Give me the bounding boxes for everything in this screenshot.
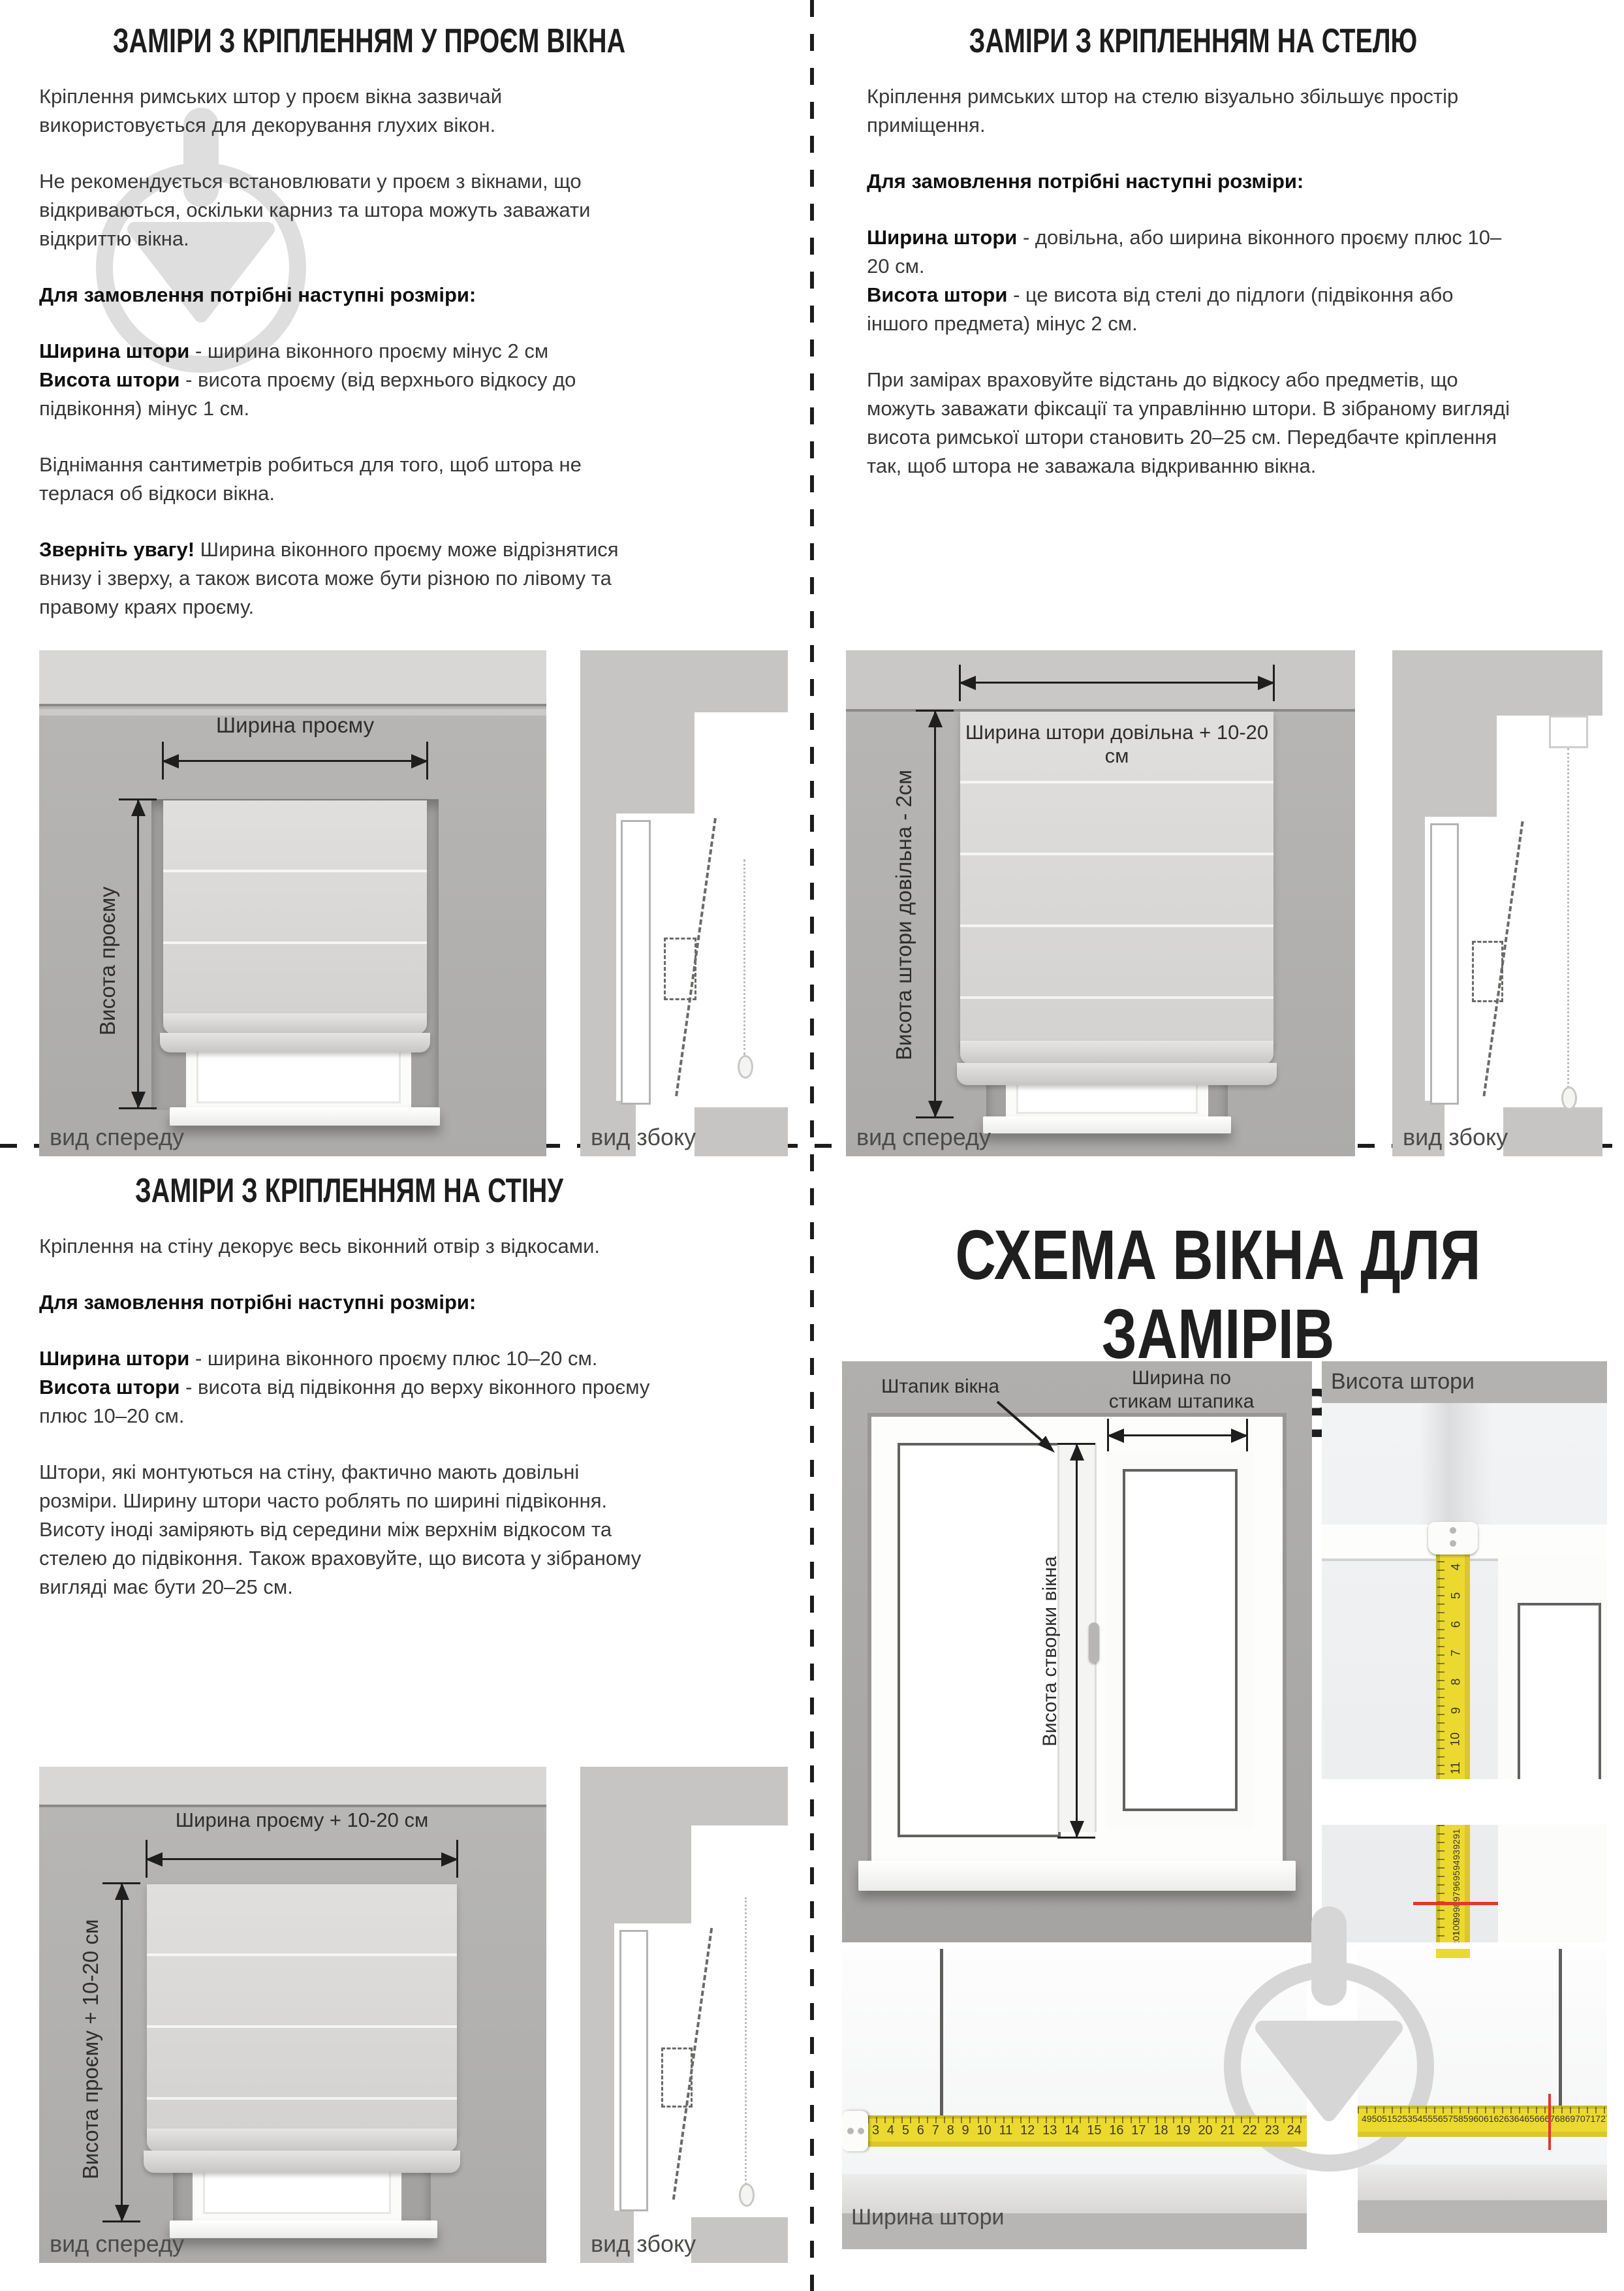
- page-canvas: { "opening": { "title": "ЗАМІРИ З КРІПЛЕ…: [0, 0, 1624, 2291]
- tape-number: 52: [1392, 2113, 1403, 2124]
- tape-number: 95: [1451, 1871, 1461, 1881]
- tape-number: 7: [1449, 1650, 1463, 1657]
- size-definitions: Ширина штори - довільна, або ширина віко…: [867, 223, 1520, 338]
- bead-width-arrow: [1108, 1434, 1247, 1436]
- dimension-tick: [102, 2220, 140, 2222]
- tape-number: 54: [1413, 2113, 1423, 2124]
- ceiling: [39, 1767, 546, 1805]
- wall-block: [1392, 650, 1497, 817]
- attention-note: Зверніть увагу! Ширина віконного проєму …: [39, 535, 653, 622]
- ceiling: [846, 650, 1355, 709]
- tape-number: 96: [1451, 1881, 1461, 1891]
- height-dimension-label: Висота штори довільна - 2см: [892, 770, 916, 1060]
- wall-block: [1503, 1107, 1602, 1156]
- side-view-caption: вид збоку: [591, 2230, 696, 2258]
- tape-number: 15: [1087, 2123, 1101, 2138]
- window-profile: [621, 820, 651, 1105]
- tape-number: 18: [1153, 2123, 1168, 2138]
- tape-number: 63: [1504, 2113, 1514, 2124]
- opening-front-view: Ширина проєму Висота проєму вид спереду: [39, 650, 546, 1156]
- photo-cut-gap: [1322, 1779, 1607, 1825]
- dimension-tick: [959, 665, 961, 701]
- tape-number: 6: [1449, 1621, 1463, 1628]
- wall-block: [580, 1767, 691, 1923]
- term: Ширина штори: [867, 226, 1017, 249]
- measuring-tape-vertical-upper: 34567891011: [1436, 1527, 1470, 1779]
- section-ceiling-mount: ЗАМІРИ З КРІПЛЕННЯМ НА СТЕЛЮ Кріплення р…: [812, 0, 1624, 646]
- dimension-tick: [1107, 1419, 1109, 1451]
- tape-number: 5: [1449, 1592, 1463, 1600]
- order-heading: Для замовлення потрібні наступні розміри…: [867, 167, 1520, 196]
- title-line: СХЕМА ВІКНА ДЛЯ ЗАМІРІВ: [893, 1216, 1542, 1374]
- wall-side-view: вид збоку: [580, 1767, 788, 2263]
- front-view-caption: вид спереду: [856, 1124, 991, 1151]
- ceiling-side-view: вид збоку: [1392, 650, 1602, 1156]
- dimension-tick: [119, 1107, 157, 1109]
- ceiling: [39, 650, 546, 704]
- height-arrow: [137, 800, 139, 1107]
- tape-number: 92: [1451, 1839, 1461, 1850]
- shade-fold: [160, 1033, 430, 1052]
- wall-block: [691, 2217, 788, 2263]
- window-sill: [170, 2220, 437, 2238]
- term: Висота штори: [39, 368, 180, 391]
- dimension-tick: [1057, 1837, 1095, 1839]
- window-sill: [170, 1107, 440, 1126]
- front-view-caption: вид спереду: [50, 2230, 184, 2258]
- paragraph: Кріплення римських штор у проєм вікна за…: [39, 82, 653, 140]
- tape-number: 57: [1443, 2113, 1454, 2124]
- dimension-tick: [146, 1840, 148, 1878]
- tape-number: 53: [1402, 2113, 1413, 2124]
- section-opening-mount: ЗАМІРИ З КРІПЛЕННЯМ У ПРОЄМ ВІКНА Кріпле…: [0, 0, 812, 646]
- curtain-width-label: Ширина штори: [851, 2205, 1004, 2230]
- sash-window-diagram: Штапик вікна Ширина по стикам штапика Ви…: [842, 1361, 1312, 1942]
- tape-number: 7: [932, 2123, 939, 2138]
- size-definitions: Ширина штори - ширина віконного проєму м…: [39, 337, 653, 423]
- dimension-tick: [456, 1840, 458, 1878]
- width-dimension-label: Ширина проєму: [163, 713, 427, 738]
- tape-number: 55: [1422, 2113, 1433, 2124]
- hook-hole: [1450, 1540, 1456, 1547]
- bracket-dashed: [664, 938, 696, 1000]
- curtain-height-photo: Висота штори 34567891011 919293949596979…: [1322, 1361, 1607, 1942]
- bead-width-label: Ширина по стикам штапика: [1100, 1367, 1263, 1414]
- shade-roller: [1549, 716, 1588, 748]
- paragraph: Кріплення на стіну декорує весь віконний…: [39, 1232, 659, 1261]
- window-profile: [1430, 823, 1459, 1105]
- sash-height-arrow: [1076, 1445, 1078, 1837]
- width-definition: Ширина штори - ширина віконного проєму п…: [39, 1344, 659, 1373]
- tape-number: 12: [1020, 2123, 1035, 2138]
- tape-number: 21: [1220, 2123, 1234, 2138]
- tape-number: 11: [1449, 1762, 1463, 1775]
- hook-hole: [847, 2128, 854, 2134]
- tape-number: 13: [1042, 2123, 1057, 2138]
- section-title: ЗАМІРИ З КРІПЛЕННЯМ НА СТЕЛЮ: [945, 22, 1441, 60]
- wall-block: [580, 1923, 614, 2211]
- tape-number: 61: [1484, 2113, 1494, 2124]
- tape-number: 70: [1575, 2113, 1585, 2124]
- tape-number: 91: [1451, 1829, 1461, 1839]
- tape-number: 8: [1449, 1679, 1463, 1686]
- window-glass: [203, 2168, 391, 2214]
- tape-number: 65: [1524, 2113, 1535, 2124]
- tape-number: 6: [917, 2123, 924, 2138]
- tape-number: 102: [1451, 1941, 1461, 1942]
- sill-front: [1358, 2200, 1607, 2233]
- term: Ширина штори: [39, 1347, 189, 1370]
- dimension-tick: [916, 1116, 954, 1118]
- tape-number: 59: [1463, 2113, 1474, 2124]
- paragraph: Кріплення римських штор на стелю візуаль…: [867, 82, 1520, 140]
- tape-number: 71: [1585, 2113, 1596, 2124]
- tape-number: 68: [1555, 2113, 1565, 2124]
- dimension-tick: [426, 742, 428, 780]
- paragraph: При замірах враховуйте відстань до відко…: [867, 366, 1520, 481]
- wall-shadow: [1420, 1403, 1491, 1527]
- section-wall-mount: ЗАМІРИ З КРІПЛЕННЯМ НА СТІНУ Кріплення н…: [0, 1146, 812, 1766]
- wall-block: [580, 814, 616, 1101]
- tape-number: 10: [976, 2123, 991, 2138]
- ceiling-front-view: Ширина штори довільна + 10-20 см Висота …: [846, 650, 1355, 1156]
- sash-glass-edge: [1518, 1603, 1601, 1784]
- tape-number: 56: [1433, 2113, 1443, 2124]
- dimension-tick: [1273, 665, 1275, 701]
- dimension-tick: [162, 742, 164, 780]
- tape-number: 58: [1453, 2113, 1463, 2124]
- shade-fold: [163, 1013, 427, 1034]
- sash-height-label: Висота створки вікна: [1039, 1556, 1061, 1746]
- glass-edge-line: [940, 1949, 943, 2136]
- tape-number: 9: [962, 2123, 969, 2138]
- tape-number: 50: [1372, 2113, 1382, 2124]
- width-definition: Ширина штори - довільна, або ширина віко…: [867, 223, 1520, 281]
- side-view-caption: вид збоку: [1403, 1124, 1508, 1151]
- tape-hook: [1428, 1522, 1478, 1555]
- shade-fold: [147, 2128, 457, 2152]
- size-definitions: Ширина штори - ширина віконного проєму п…: [39, 1344, 659, 1430]
- tape-number: 60: [1473, 2113, 1484, 2124]
- chain-line: [745, 1897, 747, 2185]
- paragraph: Не рекомендується встановлювати у проєм …: [39, 167, 653, 253]
- paragraph: Віднімання сантиметрів робиться для того…: [39, 450, 653, 508]
- window-profile: [619, 1930, 648, 2211]
- molding-line: [39, 1805, 546, 1807]
- tape-number: 72: [1595, 2113, 1606, 2124]
- term: Висота штори: [867, 283, 1007, 306]
- measurement-red-mark: [1413, 1902, 1498, 1905]
- bracket-dashed: [661, 2047, 693, 2108]
- roman-shade: [147, 1884, 457, 2132]
- height-definition: Висота штори - висота проєму (від верхнь…: [39, 366, 653, 423]
- paragraph: Штори, які монтуються на стіну, фактично…: [39, 1458, 659, 1602]
- wall-block: [695, 650, 788, 712]
- width-arrow: [147, 1858, 457, 1860]
- width-arrow: [960, 682, 1273, 684]
- chain-pull: [738, 1055, 753, 1079]
- measuring-tape-horizontal-right: 4950515253545556575859606162636465666768…: [1358, 2106, 1607, 2137]
- shade-fold: [957, 1063, 1277, 1085]
- order-heading: Для замовлення потрібні наступні розміри…: [39, 281, 653, 309]
- height-definition: Висота штори - висота від підвіконня до …: [39, 1373, 659, 1430]
- tape-stub: [1436, 1949, 1470, 1958]
- shade-fold: [144, 2151, 460, 2173]
- window-sill: [983, 1116, 1231, 1133]
- tape-ticks: [842, 2117, 1307, 2123]
- chain-line: [743, 859, 745, 1055]
- molding-line: [39, 704, 546, 706]
- definition: - ширина віконного проєму плюс 10–20 см.: [195, 1347, 597, 1370]
- wall-front-view: Ширина проєму + 10-20 см Висота проєму +…: [39, 1767, 546, 2263]
- tape-number: 94: [1451, 1860, 1461, 1871]
- ceiling-block: [1497, 650, 1602, 716]
- term: Ширина штори: [39, 340, 189, 362]
- tape-number: 66: [1535, 2113, 1545, 2124]
- height-arrow: [934, 712, 936, 1116]
- dimension-tick: [1246, 1419, 1248, 1451]
- height-dimension-label: Висота проєму: [95, 887, 120, 1035]
- width-arrow: [163, 760, 427, 762]
- tape-number: 22: [1243, 2123, 1257, 2138]
- curtain-height-label: Висота штори: [1331, 1369, 1475, 1395]
- dimension-tick: [102, 1882, 140, 1884]
- glass-edge-line: [1559, 1949, 1562, 2126]
- watermark-handle: [1311, 1906, 1347, 2006]
- tape-number: 49: [1362, 2113, 1372, 2124]
- dimension-tick: [916, 710, 954, 712]
- tape-number: 9: [1449, 1707, 1463, 1714]
- tape-number: 93: [1451, 1850, 1461, 1860]
- measuring-tape-horizontal-left: 3456789101112131415161718192021222324: [842, 2115, 1307, 2147]
- tape-number: 10: [1449, 1732, 1463, 1746]
- wall-block: [691, 1767, 788, 1825]
- tape-numbers: 3456789101112131415161718192021222324: [872, 2123, 1302, 2147]
- tape-number: 19: [1176, 2123, 1190, 2138]
- bracket-dashed: [1472, 941, 1503, 1002]
- tape-hook: [842, 2111, 868, 2151]
- shade-fold: [960, 1041, 1273, 1064]
- tape-number: 69: [1565, 2113, 1576, 2124]
- height-arrow: [121, 1884, 123, 2220]
- tape-number: 97: [1451, 1891, 1461, 1902]
- tape-number: 11: [999, 2123, 1013, 2138]
- tape-number: 5: [902, 2123, 909, 2138]
- tape-number: 73: [1606, 2113, 1607, 2124]
- chain-pull: [1561, 1086, 1577, 1110]
- measurement-red-mark: [1548, 2094, 1551, 2150]
- width-definition: Ширина штори - ширина віконного проєму м…: [39, 337, 653, 366]
- dimension-tick: [1057, 1443, 1095, 1445]
- roman-shade: [163, 800, 427, 1016]
- tape-number: 4: [1449, 1564, 1463, 1571]
- tape-number: 8: [947, 2123, 954, 2138]
- opening-side-view: вид збоку: [580, 650, 788, 1156]
- tape-number: 20: [1198, 2123, 1212, 2138]
- tape-number: 14: [1065, 2123, 1079, 2138]
- tape-number: 51: [1382, 2113, 1392, 2124]
- tape-number: 4: [887, 2123, 894, 2138]
- chain-line: [1567, 748, 1569, 1088]
- tape-number: 3: [872, 2123, 879, 2138]
- width-dimension-label: Ширина штори довільна + 10-20 см: [960, 721, 1273, 768]
- dimension-tick: [119, 798, 157, 800]
- wall-block: [1392, 817, 1425, 1101]
- width-dimension-label: Ширина проєму + 10-20 см: [147, 1809, 457, 1832]
- tape-number: 24: [1287, 2123, 1302, 2138]
- measuring-tape-vertical-lower: 9192939495969798991001011021031041051061…: [1436, 1825, 1470, 1942]
- tape-numbers: 9192939495969798991001011021031041051061…: [1443, 1829, 1470, 1938]
- tape-ticks: [1358, 2107, 1607, 2113]
- tape-number: 17: [1131, 2123, 1146, 2138]
- tape-numbers: 34567891011: [1443, 1531, 1470, 1775]
- term: Зверніть увагу!: [39, 538, 195, 561]
- section-title: ЗАМІРИ З КРІПЛЕННЯМ У ПРОЄМ ВІКНА: [113, 22, 579, 60]
- tape-numbers: 4950515253545556575859606162636465666768…: [1362, 2113, 1604, 2137]
- wall-block: [580, 650, 695, 814]
- term: Висота штори: [39, 1376, 180, 1398]
- watermark-trowel: [1262, 2028, 1396, 2114]
- definition: - ширина віконного проєму мінус 2 см: [195, 340, 548, 362]
- height-dimension-label: Висота проєму + 10-20 см: [78, 1919, 103, 2179]
- tape-number: 23: [1265, 2123, 1279, 2138]
- chain-pull: [739, 2183, 755, 2207]
- section-title: ЗАМІРИ З КРІПЛЕННЯМ НА СТІНУ: [114, 1172, 585, 1210]
- tape-number: 16: [1109, 2123, 1123, 2138]
- tape-number: 64: [1514, 2113, 1525, 2124]
- hook-hole: [858, 2128, 864, 2134]
- order-heading: Для замовлення потрібні наступні розміри…: [39, 1288, 659, 1317]
- height-definition: Висота штори - це висота від стелі до пі…: [867, 281, 1520, 338]
- hook-hole: [1450, 1527, 1456, 1534]
- tape-number: 62: [1494, 2113, 1505, 2124]
- strip-header: Висота штори: [1322, 1361, 1607, 1403]
